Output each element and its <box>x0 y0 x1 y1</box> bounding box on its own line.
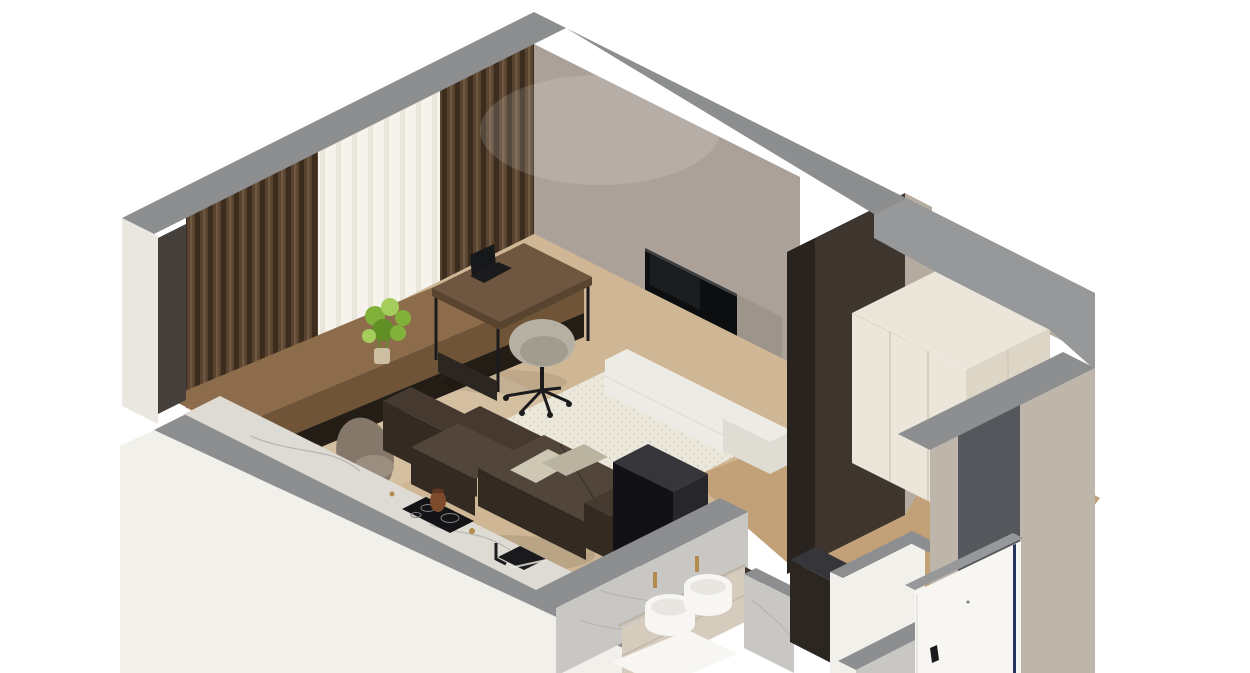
caster <box>519 410 525 416</box>
west-end-face <box>122 218 158 424</box>
leaf <box>390 325 406 341</box>
sink-2-basin <box>690 579 726 595</box>
tall-cabinet-shade <box>787 238 815 574</box>
west-end-inner <box>158 224 186 414</box>
office-chair-seat <box>520 336 568 366</box>
leaf <box>395 310 411 326</box>
caster <box>547 412 553 418</box>
kettle-lid <box>432 489 444 494</box>
plant-vase <box>374 348 390 364</box>
counter-gold-knob <box>469 528 475 534</box>
gold-faucet-1 <box>653 572 657 588</box>
leaf <box>362 329 376 343</box>
door-peephole-dot <box>967 601 970 604</box>
counter-gold-knob-2 <box>390 492 395 497</box>
sink-1-basin <box>651 599 689 616</box>
gold-faucet-2 <box>695 556 699 572</box>
apartment-isometric-svg <box>0 0 1250 673</box>
door-navy-strip <box>1013 544 1016 673</box>
leaf <box>381 298 399 316</box>
apartment-render <box>0 0 1250 673</box>
caster <box>566 401 572 407</box>
caster <box>503 395 509 401</box>
